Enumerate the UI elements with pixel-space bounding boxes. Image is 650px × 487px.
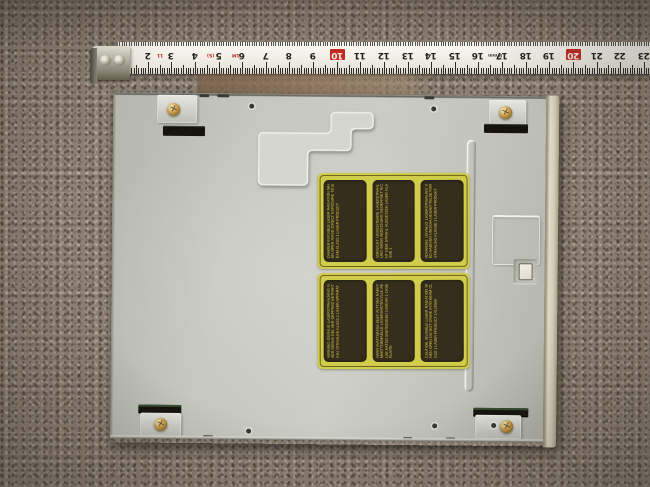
tape-tick [575, 68, 576, 74]
tape-tick [237, 42, 238, 46]
tape-tick [502, 42, 503, 46]
optical-drive-bottom: DANGER INVISIBLE LASER RADIATION WHEN OP… [110, 92, 559, 446]
tape-tick [292, 42, 293, 46]
tape-tick [535, 42, 536, 46]
photo-scene: DANGER INVISIBLE LASER RADIATION WHEN OP… [0, 0, 650, 487]
tape-tick [325, 65, 326, 74]
tape-tick [552, 42, 553, 46]
tape-tick [422, 42, 423, 46]
tape-tick [204, 68, 205, 74]
tape-tick [424, 68, 425, 74]
tape-tick [356, 42, 357, 46]
tape-tick [601, 42, 602, 46]
tape-tick [493, 42, 494, 46]
tape-tick [219, 62, 220, 74]
tape-tick [157, 68, 158, 74]
warning-label-sticker-top: DANGER INVISIBLE LASER RADIATION WHEN OP… [318, 173, 470, 269]
slot-top-left [163, 126, 205, 136]
tape-tick [563, 42, 564, 46]
tape-tick [360, 42, 361, 46]
tape-tick [212, 68, 213, 74]
tape-tick [332, 42, 333, 46]
tape-tick [377, 68, 378, 74]
tape-tick [462, 68, 463, 74]
tape-tick [483, 42, 484, 46]
tape-tick [483, 68, 484, 74]
tape-tick [384, 62, 385, 74]
tape-number-11: 11 [352, 49, 368, 60]
tape-tick [573, 62, 574, 74]
tape-tick [429, 68, 430, 74]
tape-tick [502, 62, 503, 74]
tape-tick [249, 68, 250, 74]
tape-tick [160, 42, 161, 46]
tape-number-18: 18 [518, 49, 534, 60]
tape-tick [398, 68, 399, 74]
tape-tick [403, 42, 404, 46]
tape-tick [254, 42, 255, 46]
tape-tick [148, 42, 149, 46]
tape-tick [334, 42, 335, 46]
tape-tick [452, 42, 453, 46]
tape-tick [559, 68, 560, 74]
tape-tick [254, 65, 255, 74]
tape-tick [644, 42, 645, 46]
tape-tick [436, 42, 437, 46]
tape-tick [448, 68, 449, 74]
tape-tick [346, 68, 347, 74]
tape-tick [221, 42, 222, 46]
tape-tick [457, 68, 458, 74]
tape-tick [644, 62, 645, 74]
tape-tick [301, 65, 302, 74]
tape-tick [441, 42, 442, 46]
tape-number-2: 2 [140, 49, 156, 60]
tape-tick [632, 42, 633, 46]
tape-tick [308, 68, 309, 74]
tape-tick [349, 42, 350, 46]
tape-tick [313, 42, 314, 46]
tape-tick [634, 42, 635, 46]
tape-tick [372, 65, 373, 74]
tape-tick [235, 42, 236, 46]
warning-label-sticker-bottom: VARNING OSYNLIG LASERSTRAALNING NAER DEN… [318, 273, 470, 369]
tape-tick [263, 42, 264, 46]
tape-tick [450, 68, 451, 74]
tape-tick [299, 68, 300, 74]
tape-tick [545, 42, 546, 46]
tape-tick [448, 42, 449, 46]
tape-tick [233, 68, 234, 74]
tape-number-22: 22 [612, 49, 628, 60]
tape-tick [247, 68, 248, 74]
tape-tick [478, 62, 479, 74]
tape-tick [356, 68, 357, 74]
tape-tick [554, 68, 555, 74]
tape-tick [563, 68, 564, 74]
tape-tick [325, 42, 326, 46]
tape-tick [578, 68, 579, 74]
tape-tick [141, 68, 142, 74]
tape-tick [410, 68, 411, 74]
tape-tick [625, 42, 626, 46]
tape-tick [134, 42, 135, 46]
tape-tick [266, 62, 267, 74]
tape-tick [181, 68, 182, 74]
edge-notch [446, 438, 455, 441]
tape-tick [391, 42, 392, 46]
tape-tick [337, 62, 338, 74]
tape-tick [252, 42, 253, 46]
tape-tick [585, 65, 586, 74]
tape-tick [393, 68, 394, 74]
tape-tick [620, 62, 621, 74]
tape-tick [547, 68, 548, 74]
tape-tick [450, 42, 451, 46]
tape-tick [478, 42, 479, 46]
tape-tick [476, 68, 477, 74]
tape-tick [493, 68, 494, 74]
tape-tick [282, 42, 283, 46]
tape-tick [280, 42, 281, 46]
tape-tick [625, 68, 626, 74]
tape-tick [455, 62, 456, 74]
tape-tick [240, 68, 241, 74]
tape-tick [259, 42, 260, 46]
tape-tick [169, 42, 170, 46]
tape-tick [174, 42, 175, 46]
edge-notch [217, 94, 229, 97]
tape-tick [209, 68, 210, 74]
tape-tick [500, 42, 501, 46]
tape-tick [242, 62, 243, 74]
tape-tick [426, 42, 427, 46]
tape-tick [183, 42, 184, 46]
tape-tick [582, 68, 583, 74]
tape-tick [367, 68, 368, 74]
tape-tick [530, 42, 531, 46]
tape-tick [327, 42, 328, 46]
tape-tick [410, 42, 411, 46]
tape-tick [556, 42, 557, 46]
tape-tick [641, 42, 642, 46]
warning-label-text: VARO AVATTAESSA OLET ALTTIINA NAEKYMAETT… [376, 284, 412, 358]
tape-number-12: 12 [376, 49, 392, 60]
tape-tick [365, 42, 366, 46]
tape-tick [521, 42, 522, 46]
tape-tick [389, 42, 390, 46]
tape-tick [419, 65, 420, 74]
tape-tick [190, 68, 191, 74]
tape-tick [540, 68, 541, 74]
tape-tick [580, 68, 581, 74]
tape-tick [464, 68, 465, 74]
edge-notch [199, 94, 209, 97]
tape-tick [594, 42, 595, 46]
tape-tick [571, 68, 572, 74]
tape-tick [136, 42, 137, 46]
tape-tick [608, 42, 609, 46]
tape-tick [304, 42, 305, 46]
tape-tick [467, 65, 468, 74]
tape-tick [474, 68, 475, 74]
tape-tick [599, 42, 600, 46]
tape-tick [318, 42, 319, 46]
tape-tick [469, 68, 470, 74]
tape-tick [436, 68, 437, 74]
tape-tick [608, 65, 609, 74]
tape-tick [178, 68, 179, 74]
tape-tick [358, 42, 359, 46]
tape-tick [405, 68, 406, 74]
tape-tick [273, 68, 274, 74]
slot-top-right [484, 124, 528, 133]
tape-tick [219, 42, 220, 46]
tape-tick [259, 68, 260, 74]
tape-tick [188, 68, 189, 74]
tape-tick [639, 42, 640, 46]
tape-tick [523, 68, 524, 74]
tape-tick [443, 65, 444, 74]
edge-notch [403, 437, 412, 440]
tape-micro-mark: 8 mm [488, 52, 502, 57]
tape-tick [403, 68, 404, 74]
tape-tick [167, 68, 168, 74]
tape-tick [526, 62, 527, 74]
tape-tick [488, 42, 489, 46]
tape-tick [632, 65, 633, 74]
tape-tick [344, 68, 345, 74]
tape-tick [285, 68, 286, 74]
tape-tick [396, 65, 397, 74]
tape-number-9: 9 [305, 49, 321, 60]
tape-tick [481, 42, 482, 46]
tape-tick [204, 42, 205, 46]
tape-tick [152, 42, 153, 46]
warning-label-panel: VARNING OSYNLIG LASERSTRAALNING NAER DEN… [324, 280, 367, 362]
tape-tick [452, 68, 453, 74]
tape-tick [148, 62, 149, 74]
tape-tick [294, 68, 295, 74]
tape-tick [263, 68, 264, 74]
tape-tick [323, 68, 324, 74]
tape-tick [561, 65, 562, 74]
tape-hook-lip [90, 48, 97, 84]
tape-tick [382, 42, 383, 46]
tape-micro-mark: (S) [207, 52, 214, 57]
tape-tick [181, 42, 182, 46]
chassis-hole [249, 104, 254, 109]
tape-tick [384, 42, 385, 46]
tape-tick [601, 68, 602, 74]
tape-tick [351, 42, 352, 46]
tape-tick [627, 68, 628, 74]
tape-tick [542, 68, 543, 74]
tape-tick [174, 68, 175, 74]
tape-tick [186, 42, 187, 46]
tape-tick [297, 68, 298, 74]
tape-tick [289, 42, 290, 46]
warning-label-text: VARNING OSYNLIG LASERSTRAALNING NAER DEN… [327, 284, 363, 358]
tape-tick [417, 68, 418, 74]
tape-tick [424, 42, 425, 46]
warning-label-text: ADVARSEL USYNLIG LASERSTRAALING VED AABN… [424, 184, 460, 258]
warning-label-panel: ADVARSEL USYNLIG LASERSTRAALING VED AABN… [421, 180, 464, 262]
tape-tick [634, 68, 635, 74]
tape-tick [486, 68, 487, 74]
tape-tick [242, 42, 243, 46]
tape-tick [434, 68, 435, 74]
tape-tick [623, 42, 624, 46]
tape-tick [143, 42, 144, 46]
tape-tick [462, 42, 463, 46]
tape-tick [245, 68, 246, 74]
tape-tick [223, 42, 224, 46]
tape-tick [582, 42, 583, 46]
tape-tick [556, 68, 557, 74]
tape-tick [559, 42, 560, 46]
tape-tick [311, 42, 312, 46]
warning-label-panel: VORSICHT UNSICHTBARE LASERSTRAHLUNG WENN… [372, 180, 415, 262]
tape-tick [618, 42, 619, 46]
tape-number-3: 3 [163, 49, 179, 60]
tape-tick [301, 42, 302, 46]
hook-rivet [100, 55, 111, 66]
tape-tick [611, 42, 612, 46]
tape-tick [408, 62, 409, 74]
tape-tick [474, 42, 475, 46]
tape-tick [545, 68, 546, 74]
tape-tick [400, 68, 401, 74]
tape-tick [256, 68, 257, 74]
tape-tick [592, 68, 593, 74]
tape-tick [245, 42, 246, 46]
tape-tick [398, 42, 399, 46]
tape-tick [268, 68, 269, 74]
tape-tick [308, 42, 309, 46]
tape-tick [171, 42, 172, 46]
tape-tick [138, 68, 139, 74]
tape-tick [353, 42, 354, 46]
tape-tick [320, 42, 321, 46]
tape-tick [278, 65, 279, 74]
tape-tick [630, 42, 631, 46]
tape-tick [431, 62, 432, 74]
tape-tick [516, 42, 517, 46]
tape-tick [646, 68, 647, 74]
tape-tick [332, 68, 333, 74]
tape-tick [212, 42, 213, 46]
chassis-hole [246, 429, 251, 434]
tape-tick [566, 42, 567, 46]
tape-micro-mark: 1M [232, 52, 240, 57]
switch-recess [514, 259, 537, 283]
tape-tick [533, 68, 534, 74]
tape-tick [509, 42, 510, 46]
tape-tick [235, 68, 236, 74]
tape-tick [471, 68, 472, 74]
tape-tick [481, 68, 482, 74]
tape-tick [323, 42, 324, 46]
tape-tick [197, 68, 198, 74]
tape-tick [488, 68, 489, 74]
tape-tick [365, 68, 366, 74]
tape-tick [202, 68, 203, 74]
tape-tick [464, 42, 465, 46]
tape-tick [615, 68, 616, 74]
tape-number-15: 15 [447, 49, 463, 60]
tape-number-19: 19 [541, 49, 557, 60]
screw-bottom-left [154, 418, 167, 431]
tape-tick [271, 42, 272, 46]
tape-tick [351, 68, 352, 74]
tape-tick [134, 68, 135, 74]
tape-tick [237, 68, 238, 74]
tape-tick [552, 68, 553, 74]
tape-tick [183, 65, 184, 74]
tape-tick [497, 68, 498, 74]
tape-tick [164, 68, 165, 74]
tape-tick [150, 68, 151, 74]
tape-tick [214, 42, 215, 46]
tape-tick [190, 42, 191, 46]
edge-notch [424, 96, 434, 99]
tape-tick [537, 65, 538, 74]
tape-number-21: 21 [589, 49, 605, 60]
tape-tick [419, 42, 420, 46]
tape-tick [431, 42, 432, 46]
tape-tick [514, 42, 515, 46]
tape-tick [145, 42, 146, 46]
tape-tick [304, 68, 305, 74]
tape-tick [507, 68, 508, 74]
tape-tick [315, 42, 316, 46]
white-switch [519, 263, 533, 280]
tape-tick [511, 68, 512, 74]
tape-tick [278, 42, 279, 46]
tape-tick [533, 42, 534, 46]
tape-tick [589, 42, 590, 46]
tape-tick [597, 62, 598, 74]
tape-tick [471, 42, 472, 46]
tape-tick [374, 42, 375, 46]
tape-tick [344, 42, 345, 46]
tape-tick [592, 42, 593, 46]
tape-tick [580, 42, 581, 46]
tape-tick [618, 68, 619, 74]
tape-tick [606, 42, 607, 46]
tape-tick [282, 68, 283, 74]
tape-tick [537, 42, 538, 46]
tape-tick [313, 62, 314, 74]
tape-tick [216, 42, 217, 46]
tape-tick [346, 42, 347, 46]
tape-tick [131, 42, 132, 46]
tape-tick [587, 42, 588, 46]
tape-tick [648, 42, 649, 46]
screw-top-right [499, 106, 512, 119]
tape-tick [469, 42, 470, 46]
tape-tick [467, 42, 468, 46]
tape-tick [249, 42, 250, 46]
tape-tick [261, 42, 262, 46]
tape-tick [377, 42, 378, 46]
tape-tick [460, 42, 461, 46]
tape-tick [315, 68, 316, 74]
tape-tick [155, 42, 156, 46]
tape-tick [587, 68, 588, 74]
tape-tick [197, 42, 198, 46]
